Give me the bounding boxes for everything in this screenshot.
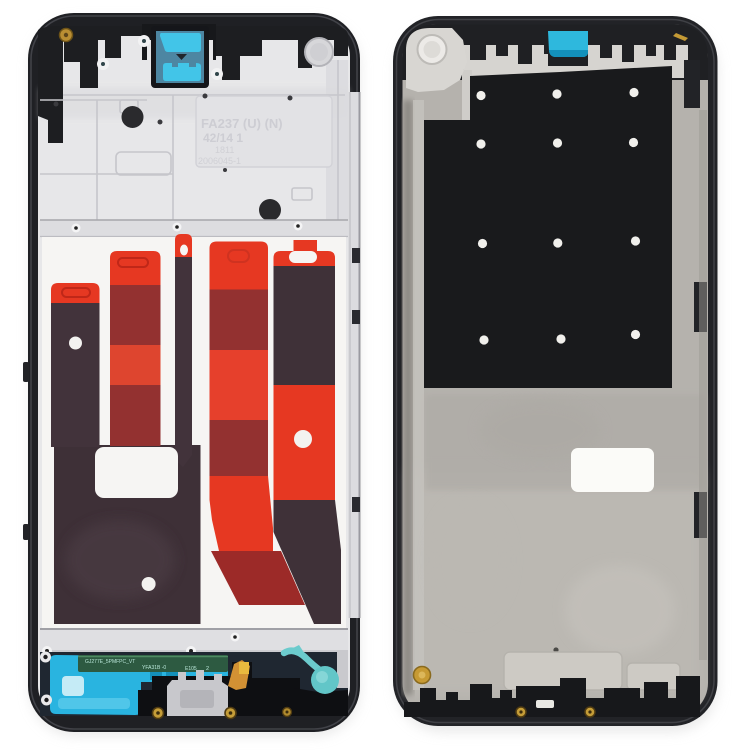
- svg-text:42/14 1: 42/14 1: [203, 131, 243, 145]
- svg-text:GJ277E_5PMFPC_VT: GJ277E_5PMFPC_VT: [85, 659, 135, 665]
- svg-text:2006045-1: 2006045-1: [198, 156, 241, 166]
- svg-text:E105: E105: [185, 666, 197, 672]
- svg-text:2: 2: [206, 666, 209, 672]
- svg-text:1811: 1811: [215, 145, 234, 155]
- svg-text:YFA31B -0: YFA31B -0: [142, 665, 166, 671]
- svg-text:FA237 (U) (N): FA237 (U) (N): [201, 116, 283, 131]
